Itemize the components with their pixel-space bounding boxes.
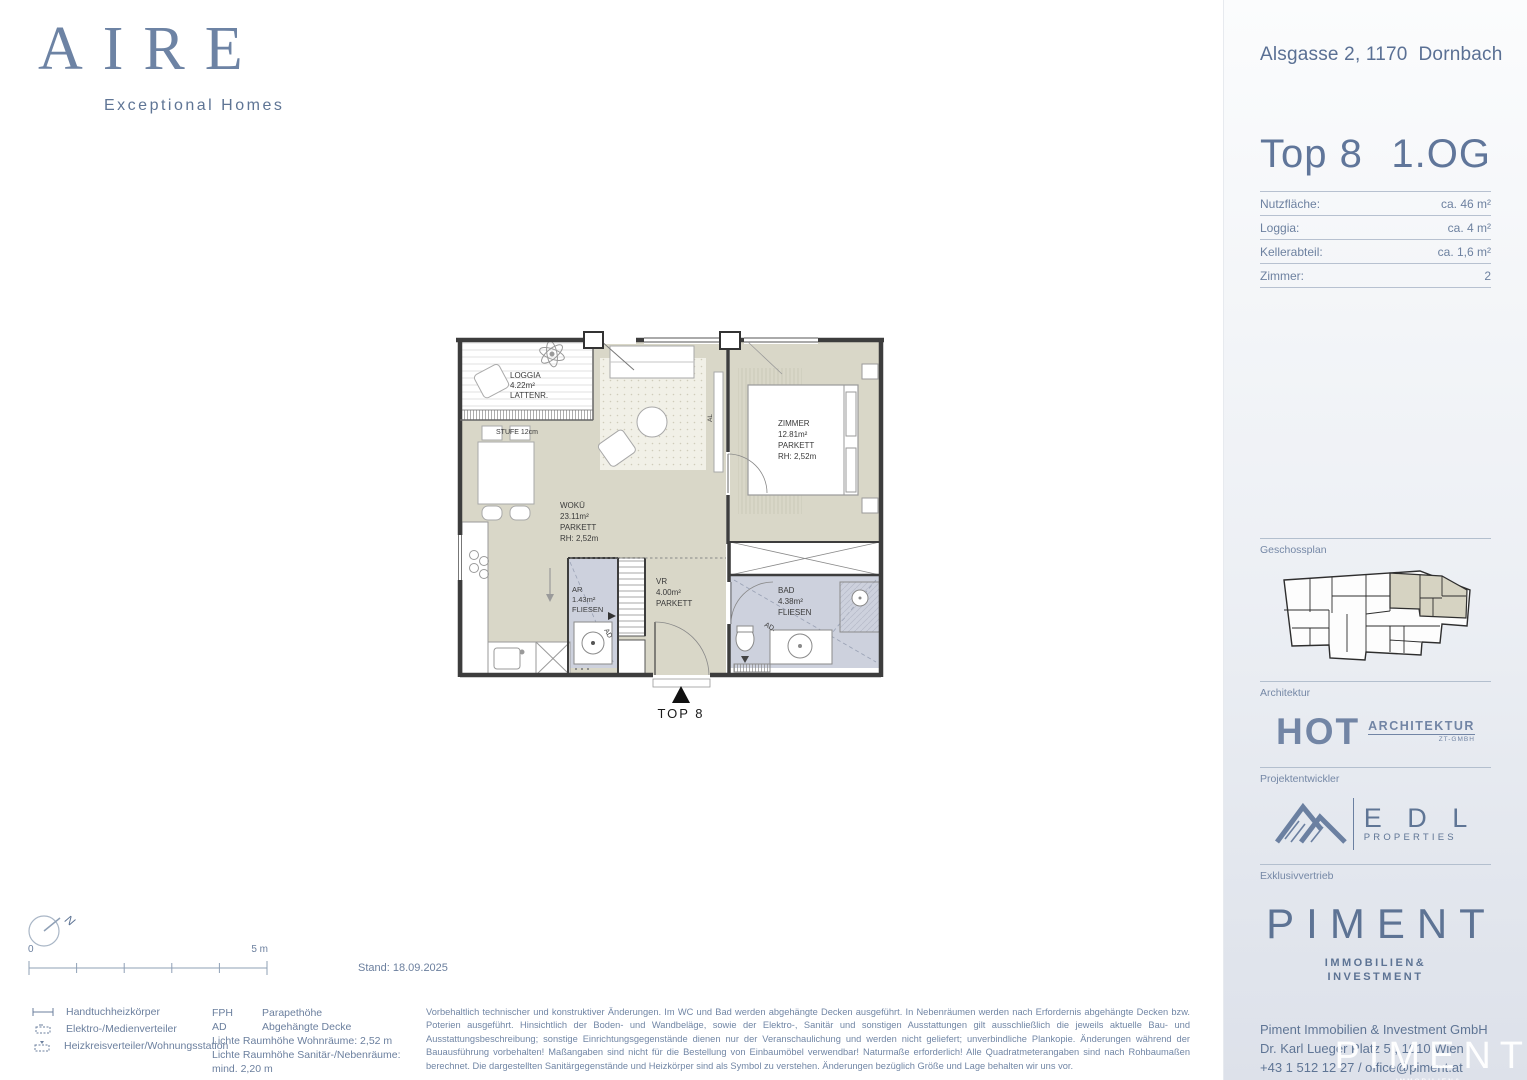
legend-abbreviations: FPH Parapethöhe AD Abgehängte Decke Lich…: [212, 1006, 420, 1076]
edl-sub: PROPERTIES: [1364, 832, 1477, 843]
piment-wordmark: PIMENT: [1260, 900, 1503, 948]
fact-row: Zimmer: 2: [1260, 264, 1491, 288]
floor-plan-drawing: LOGGIA 4.22m² LATTENR. STUFE 12cm WOKÜ 2…: [448, 330, 890, 722]
svg-text:PARKETT: PARKETT: [656, 599, 692, 608]
hot-wordmark: HOT: [1276, 715, 1360, 749]
geschossplan-minimap: [1270, 566, 1491, 673]
unit-title-row: Top 8 1.OG: [1260, 132, 1491, 177]
svg-text:FLIESEN: FLIESEN: [778, 608, 812, 617]
heating-station-icon: [30, 1040, 54, 1052]
svg-text:4.00m²: 4.00m²: [656, 588, 681, 597]
unit-title: Top 8: [1260, 132, 1363, 177]
brand-logo: AIRE Exceptional Homes: [38, 14, 284, 115]
scale-bar: 0 5 m: [28, 944, 268, 980]
section-label-projektentwickler: Projektentwickler: [1260, 767, 1491, 785]
edl-divider: [1353, 798, 1354, 850]
fact-label: Nutzfläche:: [1260, 197, 1320, 211]
piment-sub2: INVESTMENT: [1260, 970, 1491, 984]
svg-text:TOP 8: TOP 8: [657, 706, 704, 721]
svg-text:AR: AR: [572, 585, 583, 594]
fact-label: Kellerabteil:: [1260, 245, 1323, 259]
floor-title: 1.OG: [1391, 132, 1491, 177]
piment-logo: PIMENT IMMOBILIEN& INVESTMENT: [1260, 900, 1491, 984]
fact-value: ca. 1,6 m²: [1438, 245, 1491, 259]
svg-text:1.43m²: 1.43m²: [572, 595, 596, 604]
legend-label: Heizkreisverteiler/Wohnungsstation: [64, 1040, 228, 1052]
legend-label: Handtuchheizkörper: [66, 1006, 160, 1018]
plan-wardrobe: [730, 542, 880, 575]
hot-sub2: ZT-GMBH: [1368, 736, 1475, 743]
svg-text:LATTENR.: LATTENR.: [510, 391, 548, 400]
brand-tagline: Exceptional Homes: [38, 97, 284, 115]
address: Alsgasse 2, 1170 Dornbach: [1260, 44, 1491, 66]
fact-row: Nutzfläche: ca. 46 m²: [1260, 192, 1491, 216]
stand-date: Stand: 18.09.2025: [358, 962, 448, 974]
brand-wordmark: AIRE: [38, 14, 284, 85]
svg-text:4.22m²: 4.22m²: [510, 381, 535, 390]
fact-row: Loggia: ca. 4 m²: [1260, 216, 1491, 240]
fact-label: Loggia:: [1260, 221, 1299, 235]
edl-wordmark: E D L: [1364, 805, 1477, 831]
fact-value: ca. 4 m²: [1448, 221, 1491, 235]
legend-item: Heizkreisverteiler/Wohnungsstation: [30, 1040, 210, 1052]
watermark-wordmark: PIMENT: [1334, 1035, 1527, 1078]
piment-sub1: IMMOBILIEN&: [1260, 956, 1491, 970]
svg-text:LOGGIA: LOGGIA: [510, 371, 541, 380]
abbr-label: Parapethöhe: [262, 1006, 322, 1020]
edl-properties-logo: E D L PROPERTIES: [1260, 797, 1491, 850]
abbr: FPH: [212, 1006, 262, 1020]
legend-abbr-row: AD Abgehängte Decke: [212, 1020, 420, 1034]
section-label-geschossplan: Geschossplan: [1260, 538, 1491, 556]
sidebar: Alsgasse 2, 1170 Dornbach Top 8 1.OG Nut…: [1223, 0, 1527, 1080]
page: AIRE Exceptional Homes: [0, 0, 1527, 1080]
towel-radiator-icon: [30, 1007, 56, 1017]
fact-row: Kellerabteil: ca. 1,6 m²: [1260, 240, 1491, 264]
svg-text:PARKETT: PARKETT: [560, 523, 596, 532]
floor-plan: LOGGIA 4.22m² LATTENR. STUFE 12cm WOKÜ 2…: [448, 330, 890, 727]
legend-abbr-row: FPH Parapethöhe: [212, 1006, 420, 1020]
svg-text:RH: 2,52m: RH: 2,52m: [778, 452, 817, 461]
svg-text:WOKÜ: WOKÜ: [560, 501, 585, 510]
legend-label: Elektro-/Medienverteiler: [66, 1023, 177, 1035]
fact-label: Zimmer:: [1260, 269, 1304, 283]
fact-value: 2: [1484, 269, 1491, 283]
electro-distributor-icon: [30, 1023, 56, 1035]
facts-table: Nutzfläche: ca. 46 m² Loggia: ca. 4 m² K…: [1260, 191, 1491, 288]
svg-text:RH: 2,52m: RH: 2,52m: [560, 534, 599, 543]
legend: Handtuchheizkörper Elektro-/Medienvertei…: [30, 1006, 1190, 1076]
section-label-architektur: Architektur: [1260, 681, 1491, 699]
legend-symbols: Handtuchheizkörper Elektro-/Medienvertei…: [30, 1006, 210, 1076]
hot-sub: ARCHITEKTUR: [1368, 719, 1475, 735]
svg-text:AL: AL: [707, 414, 714, 422]
edl-roof-icon: [1275, 797, 1347, 850]
scale-bar-line: [28, 961, 268, 975]
piment-watermark: PIMENT IMMOBILIEN& INVESTMENT: [1334, 1035, 1523, 1080]
section-label-exklusivvertrieb: Exklusivvertrieb: [1260, 864, 1491, 882]
compass-n-label: N: [62, 912, 78, 929]
plan-zimmer-furniture: [738, 364, 878, 514]
room-height-note: Lichte Raumhöhe Sanitär-/Nebenräume: min…: [212, 1048, 420, 1076]
legend-item: Handtuchheizkörper: [30, 1006, 210, 1018]
svg-text:STUFE 12cm: STUFE 12cm: [496, 429, 538, 436]
disclaimer: Vorbehaltlich technischer und konstrukti…: [426, 1006, 1190, 1076]
svg-text:VR: VR: [656, 577, 667, 586]
svg-text:PARKETT: PARKETT: [778, 441, 814, 450]
legend-item: Elektro-/Medienverteiler: [30, 1023, 210, 1035]
svg-text:BAD: BAD: [778, 586, 795, 595]
scale-label-start: 0: [28, 944, 34, 955]
svg-text:23.11m²: 23.11m²: [560, 512, 589, 521]
svg-text:12.81m²: 12.81m²: [778, 430, 808, 439]
hot-architektur-logo: HOT ARCHITEKTUR ZT-GMBH: [1260, 715, 1491, 749]
svg-text:4.38m²: 4.38m²: [778, 597, 803, 606]
entrance-marker: TOP 8: [657, 686, 704, 721]
scale-label-end: 5 m: [251, 944, 268, 955]
abbr-label: Abgehängte Decke: [262, 1020, 351, 1034]
svg-text:ZIMMER: ZIMMER: [778, 419, 810, 428]
fact-value: ca. 46 m²: [1441, 197, 1491, 211]
room-height-note: Lichte Raumhöhe Wohnräume: 2,52 m: [212, 1034, 420, 1048]
svg-text:FLIESEN: FLIESEN: [572, 605, 603, 614]
abbr: AD: [212, 1020, 262, 1034]
